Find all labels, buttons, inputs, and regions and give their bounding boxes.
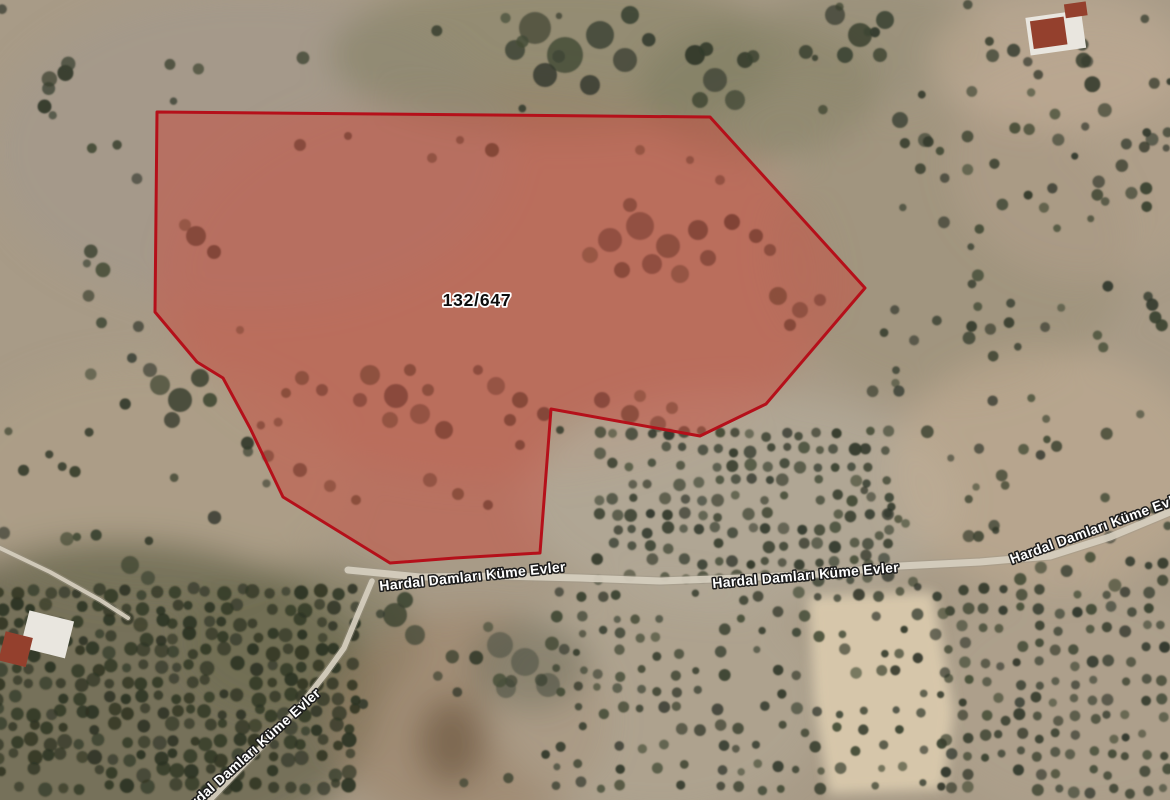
map-canvas: Hardal Damları Küme EvlerHardal Damları … [0, 0, 1170, 800]
field-plot [810, 594, 952, 792]
building-roof [1030, 17, 1068, 49]
satellite-image: Hardal Damları Küme EvlerHardal Damları … [0, 0, 1170, 800]
satellite-map-viewport[interactable]: Hardal Damları Küme EvlerHardal Damları … [0, 0, 1170, 800]
parcel-label: 132/647 [443, 290, 512, 310]
